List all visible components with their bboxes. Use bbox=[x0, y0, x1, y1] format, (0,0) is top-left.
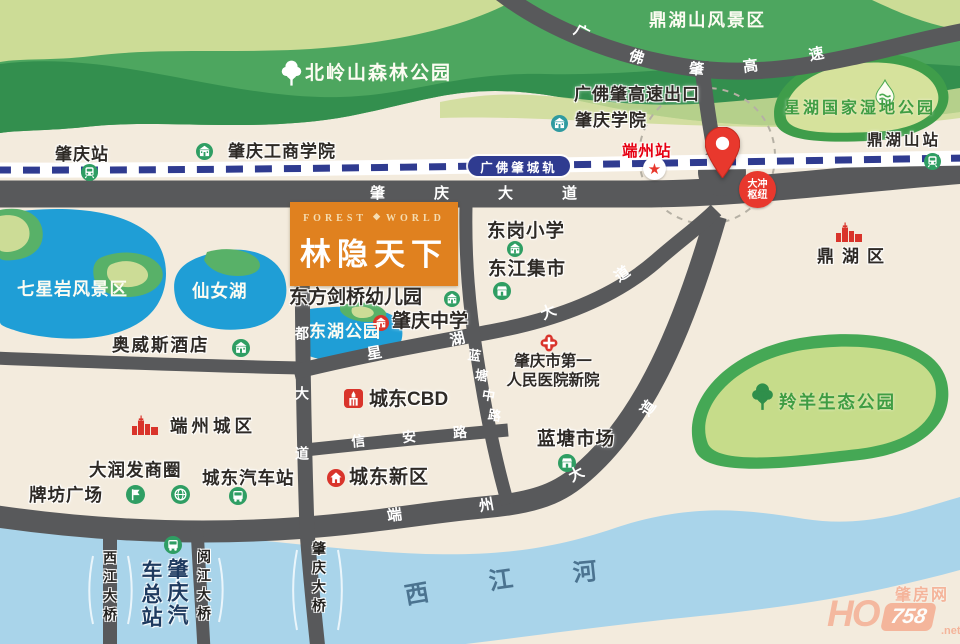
label-zhaoqing-middle: 肇庆中学 bbox=[392, 312, 468, 332]
label-donggang-primary: 东岗小学 bbox=[487, 221, 565, 240]
label-dinghu-district: 鼎湖区 bbox=[817, 248, 892, 266]
road-char: 高 bbox=[742, 58, 759, 75]
cbd-tower-icon bbox=[344, 389, 363, 408]
label-donghu-park: 东湖公园 bbox=[309, 323, 381, 341]
bridge-label-xijiang: 西江大桥 bbox=[100, 550, 120, 626]
road-label-zhaoqing-dadao: 肇庆大道 bbox=[370, 186, 626, 201]
school-icon bbox=[196, 143, 213, 160]
label-chengdong-cbd: 城东CBD bbox=[369, 390, 448, 410]
house-icon bbox=[327, 469, 345, 487]
watermark-tld: .net bbox=[941, 625, 960, 637]
bus-terminal-label-col2: 车总站 bbox=[135, 560, 165, 629]
map-base-art bbox=[0, 0, 960, 644]
kindergarten-icon bbox=[444, 291, 460, 307]
train-icon bbox=[924, 153, 941, 170]
road-char: 速 bbox=[808, 46, 826, 64]
label-chengdong-new: 城东新区 bbox=[349, 468, 429, 488]
watermark-logo: 肇房网 HO 758 .net bbox=[827, 581, 957, 641]
bus-icon bbox=[164, 536, 182, 554]
project-en-right: WORLD bbox=[386, 213, 445, 224]
project-name-en: FOREST ◆ WORLD bbox=[290, 213, 458, 224]
road-char: 肇 bbox=[688, 61, 704, 77]
label-chengdong-bus: 城东汽车站 bbox=[202, 469, 295, 487]
road-char: 蓝 bbox=[467, 348, 482, 363]
label-paifang-square: 牌坊广场 bbox=[29, 486, 103, 504]
road-char: 塘 bbox=[474, 368, 489, 383]
road-char: 路 bbox=[487, 408, 502, 423]
label-qixingyan: 七星岩风景区 bbox=[17, 280, 128, 298]
school-icon bbox=[551, 115, 568, 132]
label-zhaoqing-college: 肇庆学院 bbox=[575, 112, 647, 130]
project-en-left: FOREST bbox=[303, 213, 367, 224]
bus-terminal-label-col1: 肇庆汽 bbox=[161, 558, 191, 627]
road-char: 中 bbox=[481, 388, 496, 403]
hotel-icon bbox=[232, 339, 250, 357]
label-xinghu-wetland: 星湖国家湿地公园 bbox=[784, 101, 936, 118]
label-beiling-forest-park: 北岭山森林公园 bbox=[305, 64, 452, 84]
railway-line-badge: 广佛肇城轨 bbox=[468, 156, 570, 176]
hub-line1: 大冲 bbox=[748, 179, 768, 190]
road-char: 州 bbox=[478, 497, 495, 514]
label-aowisi-hotel: 奥威斯酒店 bbox=[112, 336, 210, 354]
market-icon bbox=[493, 282, 511, 300]
globe-icon bbox=[171, 485, 190, 504]
label-duanzhou-station: 端州站 bbox=[622, 139, 672, 161]
hub-line2: 枢纽 bbox=[748, 190, 768, 201]
project-name-cn: 林隐天下 bbox=[290, 229, 458, 274]
label-lingyang-park: 羚羊生态公园 bbox=[779, 393, 896, 411]
bus-icon bbox=[229, 487, 247, 505]
road-char: 星 bbox=[366, 345, 383, 362]
duanzhou-station-star-icon: ★ bbox=[643, 157, 666, 180]
watermark-ho: HO bbox=[827, 593, 879, 635]
label-lantang-market: 蓝塘市场 bbox=[537, 429, 615, 448]
location-pin-icon bbox=[705, 127, 740, 178]
train-icon bbox=[81, 164, 98, 181]
label-hospital: 肇庆市第一 人民医院新院 bbox=[503, 353, 603, 391]
road-char: 湖 bbox=[448, 330, 466, 348]
label-expressway-exit: 广佛肇高速出口 bbox=[574, 86, 700, 104]
watermark-site-name: 肇房网 bbox=[895, 581, 949, 605]
city-buildings-icon bbox=[836, 223, 862, 243]
label-kindergarten: 东方剑桥幼儿园 bbox=[289, 288, 422, 308]
diamond-ornament-icon: ◆ bbox=[373, 211, 380, 222]
label-duanzhou-city: 端州城区 bbox=[170, 417, 256, 435]
label-dinghushan-station: 鼎湖山站 bbox=[867, 133, 941, 149]
label-gongshang-college: 肇庆工商学院 bbox=[228, 143, 336, 161]
location-map: 肇庆大道 砚都大道 信安路 星 湖 大 道 蓝 塘 中 路 端 州 大 道 广 … bbox=[0, 0, 960, 644]
hospital-cross-icon bbox=[541, 335, 558, 352]
river-char: 江 bbox=[487, 567, 514, 594]
label-dinghushan-scenic: 鼎湖山风景区 bbox=[649, 11, 766, 29]
watermark-number: 758 bbox=[880, 603, 937, 631]
hospital-line1: 肇庆市第一 bbox=[503, 353, 603, 372]
flag-icon bbox=[126, 485, 145, 504]
river-char: 河 bbox=[572, 560, 598, 586]
label-darunfa: 大润发商圈 bbox=[89, 461, 182, 479]
dachong-hub-badge: 大冲 枢纽 bbox=[739, 171, 776, 208]
road-char: 端 bbox=[386, 507, 403, 524]
hospital-line2: 人民医院新院 bbox=[503, 372, 603, 391]
project-block: FOREST ◆ WORLD 林隐天下 bbox=[290, 202, 458, 286]
bridge-label-yuejiang: 阅江大桥 bbox=[194, 549, 214, 625]
label-zhaoqing-station: 肇庆站 bbox=[55, 146, 109, 164]
river-char: 西 bbox=[403, 581, 431, 609]
bridge-label-zhaoqing: 肇庆大桥 bbox=[309, 541, 329, 617]
label-dongjiang-market: 东江集市 bbox=[488, 259, 566, 278]
city-buildings-icon bbox=[132, 416, 158, 436]
label-xiannvhu: 仙女湖 bbox=[192, 282, 248, 300]
school-icon bbox=[507, 241, 523, 257]
